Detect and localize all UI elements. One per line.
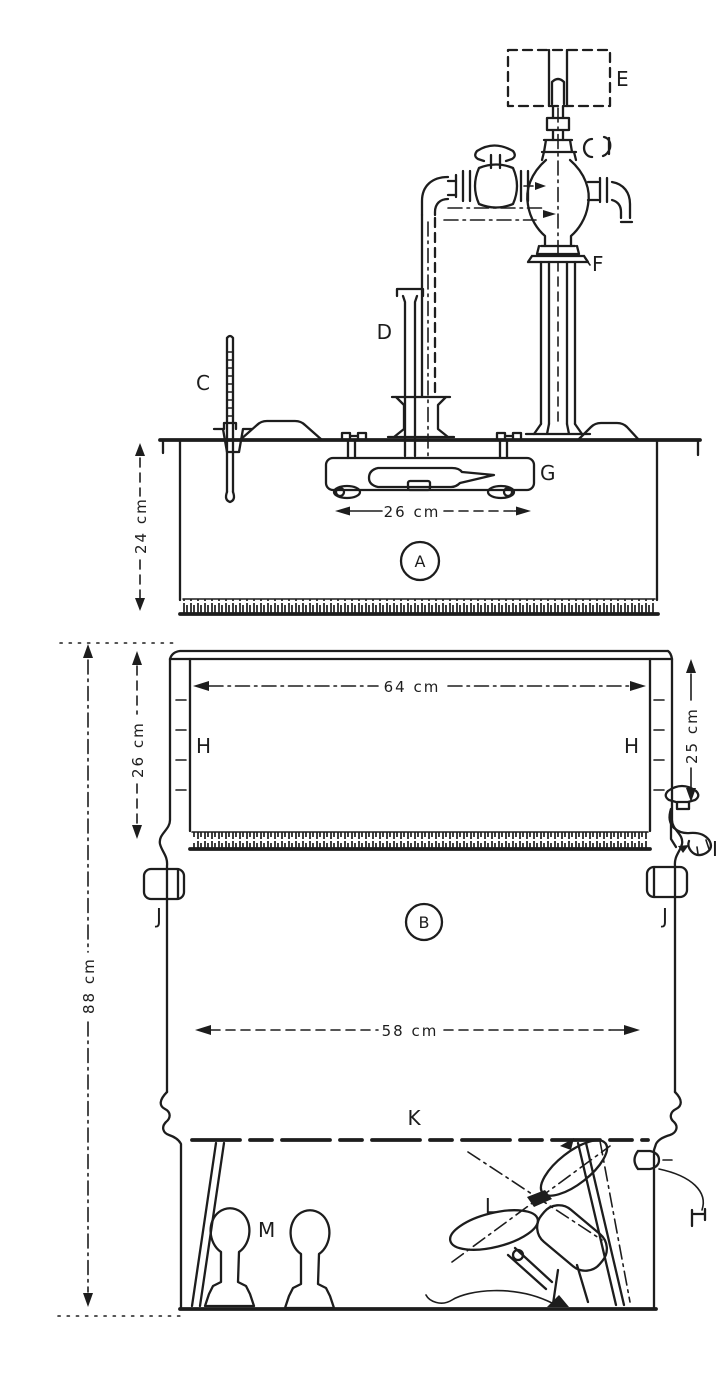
arrow-right-icon	[624, 1025, 640, 1035]
label-a: A	[415, 552, 426, 571]
thermometer-bulb	[226, 492, 234, 502]
bulbs-m: M	[205, 1208, 334, 1308]
tray-block	[408, 481, 430, 490]
jacket-ticks	[176, 700, 664, 790]
arrow-left-icon	[195, 1025, 211, 1035]
power-cord	[635, 1151, 706, 1226]
pipe-left-stub	[448, 181, 456, 195]
arrow-up-icon	[83, 644, 93, 658]
label-c: C	[196, 371, 210, 395]
arrow-right-icon	[516, 507, 531, 516]
dim-58cm: 58 cm	[195, 1022, 640, 1040]
arrow-left-icon	[193, 681, 209, 691]
fan-cable	[426, 1291, 552, 1304]
apparatus-diagram: E F D	[0, 0, 728, 1386]
mixing-vessel	[524, 108, 632, 258]
motor-e: E	[508, 50, 629, 140]
dim-25cm-right: 25 cm	[683, 659, 701, 802]
arrow-down-icon	[83, 1293, 93, 1307]
label-b-circle: B	[406, 904, 442, 940]
arrow-up-icon	[135, 443, 145, 456]
clamp-mark-icon	[584, 137, 610, 157]
lower-wall-right	[654, 1092, 681, 1308]
label-k: K	[407, 1106, 421, 1130]
dim-88cm-text: 88 cm	[80, 957, 98, 1014]
label-h-left: H	[196, 734, 211, 758]
label-b: B	[419, 913, 430, 932]
flow-arrow-run	[543, 210, 556, 218]
arrow-left-icon	[335, 507, 350, 516]
insulation-band-b	[190, 832, 650, 849]
dim-26cm-left-text: 26 cm	[129, 721, 147, 778]
dim-64cm-text: 64 cm	[384, 678, 441, 696]
bulb-m-2	[285, 1210, 334, 1308]
dim-64cm: 64 cm	[193, 678, 646, 696]
label-e: E	[616, 67, 629, 91]
vessel-neck	[542, 140, 576, 160]
tray-g: G 26 cm	[326, 441, 556, 521]
strut-left	[192, 1143, 224, 1306]
dim-88cm: 88 cm	[58, 643, 180, 1316]
insulation-band-a	[183, 599, 655, 613]
label-h-right: H	[624, 734, 639, 758]
lid-hump-left	[240, 421, 322, 440]
handle-j-left: J	[144, 869, 184, 928]
tray-pointer	[369, 468, 494, 487]
outlet-elbow	[612, 182, 632, 222]
fan-axis-lines	[452, 1146, 610, 1262]
arrow-down-icon	[132, 825, 142, 839]
tube-d: D	[377, 222, 428, 458]
fan-bracket	[508, 1248, 552, 1289]
lid-hump-right	[578, 423, 639, 440]
bulb-m-1	[205, 1208, 254, 1306]
label-i: I	[712, 837, 718, 861]
valve-body	[475, 165, 517, 208]
thermometer-c: C	[196, 336, 252, 502]
jacket-rim	[170, 651, 672, 659]
arrow-down-icon	[135, 598, 145, 611]
dim-26cm-tray-text: 26 cm	[384, 503, 441, 521]
arrow-up-icon	[686, 659, 696, 673]
dim-24cm: 24 cm	[132, 443, 150, 611]
plug-icon	[692, 1209, 705, 1226]
arrow-right-icon	[630, 681, 646, 691]
label-m: M	[258, 1218, 275, 1242]
dim-25cm-right-text: 25 cm	[683, 707, 701, 764]
label-d: D	[377, 320, 392, 344]
label-g: G	[540, 461, 556, 485]
partition-k: K	[192, 1106, 648, 1140]
label-f: F	[592, 252, 604, 276]
handle-j-right: J	[647, 867, 687, 928]
label-j-left: J	[154, 904, 162, 928]
label-j-right: J	[660, 904, 668, 928]
outer-wall-right	[672, 659, 682, 1092]
arrow-up-icon	[132, 651, 142, 665]
lid-port-spool	[388, 397, 454, 437]
cord-grommet	[635, 1151, 660, 1169]
outer-wall-left	[160, 659, 170, 1092]
dim-26cm-left: 26 cm	[129, 651, 147, 839]
tap-handle-icon	[666, 786, 699, 809]
lower-wall-left	[161, 1092, 181, 1308]
lid-end-ticks	[163, 440, 698, 455]
pipe-elbow	[422, 177, 448, 215]
stand-top-plate	[528, 256, 588, 262]
fan-motor-foot	[547, 1295, 569, 1307]
stand-base	[522, 424, 594, 440]
label-l: L	[485, 1194, 497, 1218]
tap-body	[670, 809, 711, 855]
stand-f: F	[522, 252, 604, 440]
flow-arrow-in	[535, 182, 546, 190]
fan-l: L	[426, 1131, 615, 1307]
figure: E F D	[0, 0, 728, 1386]
dim-58cm-text: 58 cm	[382, 1022, 439, 1040]
vessel-side-port	[588, 178, 607, 202]
cord-cable	[659, 1169, 703, 1210]
dim-24cm-text: 24 cm	[132, 497, 150, 554]
